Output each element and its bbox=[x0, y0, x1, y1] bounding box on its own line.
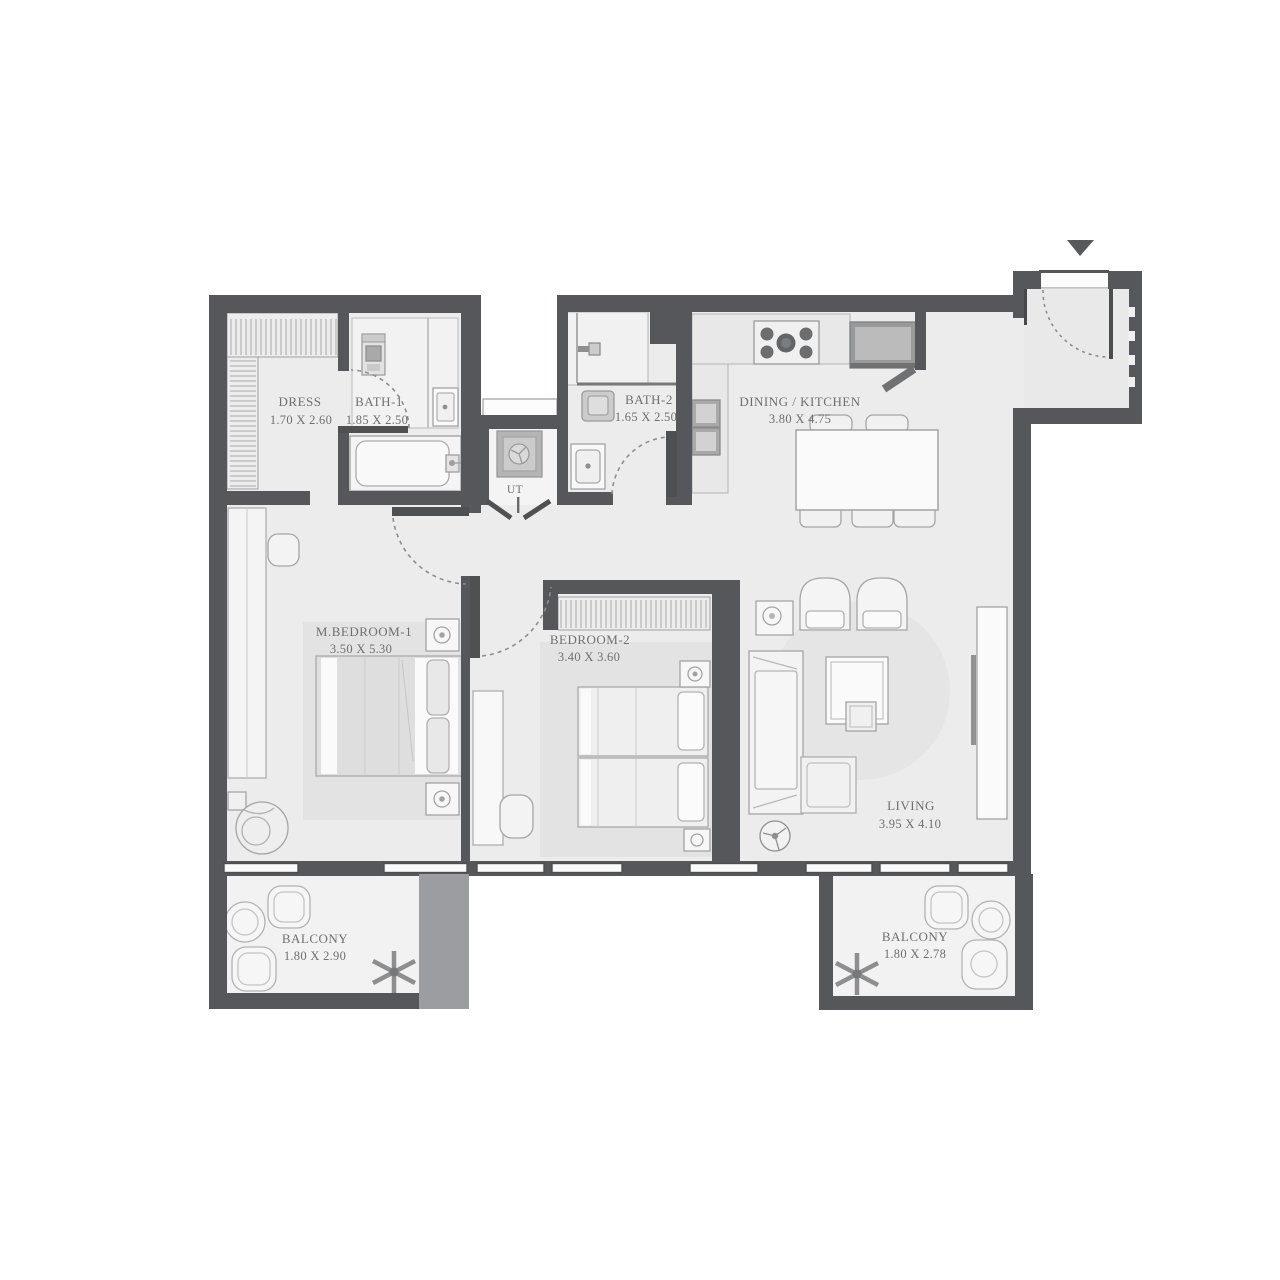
svg-text:1.80 X 2.90: 1.80 X 2.90 bbox=[284, 949, 346, 963]
svg-text:1.80 X 2.78: 1.80 X 2.78 bbox=[884, 947, 946, 961]
svg-text:DINING / KITCHEN: DINING / KITCHEN bbox=[739, 394, 860, 409]
svg-text:1.85 X 2.50: 1.85 X 2.50 bbox=[346, 413, 408, 427]
svg-text:BEDROOM-2: BEDROOM-2 bbox=[550, 632, 630, 647]
svg-text:BATH-1: BATH-1 bbox=[355, 394, 403, 409]
svg-text:1.65 X 2.50: 1.65 X 2.50 bbox=[615, 410, 677, 424]
svg-text:LIVING: LIVING bbox=[887, 798, 935, 813]
svg-text:1.70 X 2.60: 1.70 X 2.60 bbox=[270, 413, 332, 427]
svg-text:BALCONY: BALCONY bbox=[882, 929, 948, 944]
svg-text:DRESS: DRESS bbox=[279, 394, 322, 409]
svg-text:3.95 X 4.10: 3.95 X 4.10 bbox=[879, 817, 941, 831]
svg-text:3.50 X 5.30: 3.50 X 5.30 bbox=[330, 642, 392, 656]
svg-text:BATH-2: BATH-2 bbox=[625, 392, 673, 407]
svg-text:UT: UT bbox=[507, 484, 523, 496]
svg-text:BALCONY: BALCONY bbox=[282, 931, 348, 946]
svg-text:3.80 X 4.75: 3.80 X 4.75 bbox=[769, 412, 831, 426]
svg-text:3.40 X 3.60: 3.40 X 3.60 bbox=[558, 650, 620, 664]
svg-text:M.BEDROOM-1: M.BEDROOM-1 bbox=[316, 624, 412, 639]
